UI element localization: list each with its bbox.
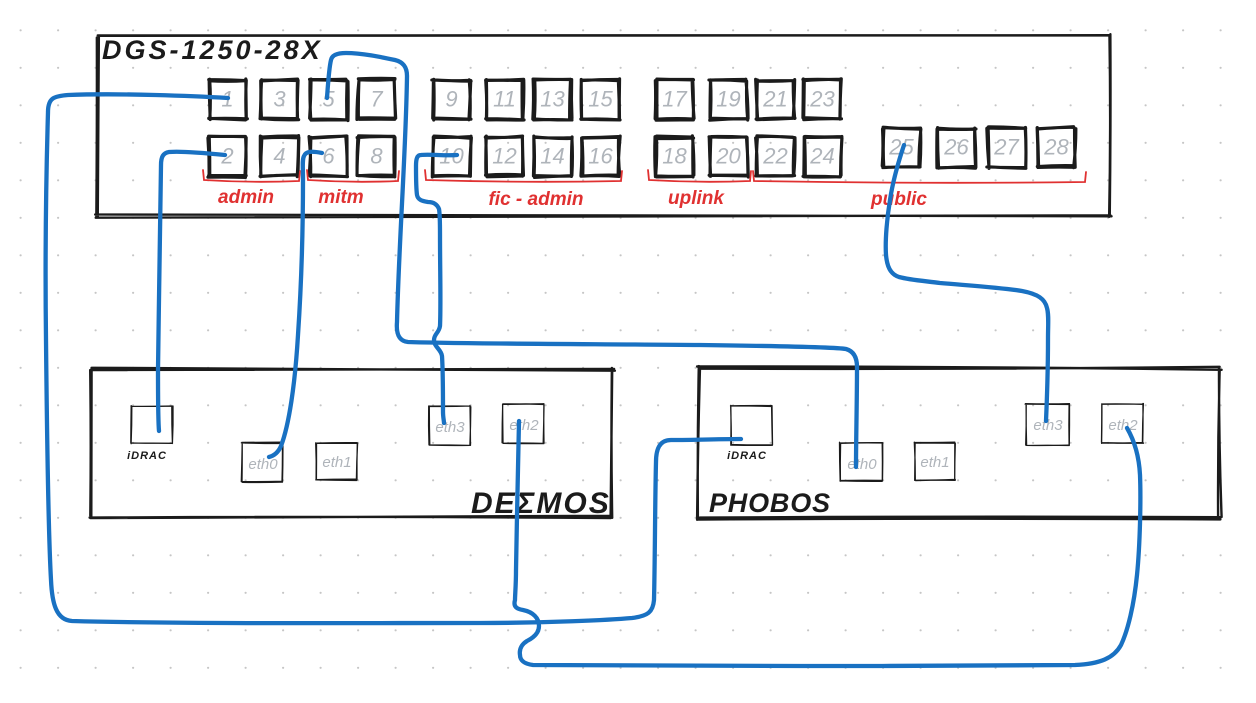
svg-text:eth2: eth2 bbox=[1108, 417, 1138, 434]
svg-text:17: 17 bbox=[662, 87, 687, 112]
svg-text:23: 23 bbox=[809, 87, 835, 112]
svg-text:PHOBOS: PHOBOS bbox=[709, 488, 831, 518]
svg-text:mitm: mitm bbox=[318, 187, 364, 208]
svg-text:fic - admin: fic - admin bbox=[488, 189, 583, 210]
svg-text:18: 18 bbox=[662, 144, 687, 169]
svg-text:22: 22 bbox=[762, 144, 787, 169]
svg-text:27: 27 bbox=[993, 135, 1019, 160]
svg-text:16: 16 bbox=[588, 144, 613, 169]
svg-text:4: 4 bbox=[273, 144, 285, 169]
svg-text:6: 6 bbox=[322, 144, 335, 169]
svg-text:21: 21 bbox=[762, 87, 787, 112]
svg-text:13: 13 bbox=[540, 87, 565, 112]
svg-text:uplink: uplink bbox=[668, 188, 725, 209]
svg-text:eth1: eth1 bbox=[322, 454, 351, 471]
svg-text:eth2: eth2 bbox=[509, 417, 539, 434]
svg-text:eth1: eth1 bbox=[920, 454, 949, 471]
svg-text:eth3: eth3 bbox=[1033, 417, 1063, 434]
svg-text:3: 3 bbox=[273, 87, 286, 112]
svg-text:public: public bbox=[870, 189, 927, 210]
svg-text:eth0: eth0 bbox=[847, 456, 877, 473]
svg-text:19: 19 bbox=[716, 87, 740, 112]
svg-text:26: 26 bbox=[943, 135, 969, 160]
svg-text:DGS-1250-28X: DGS-1250-28X bbox=[102, 35, 323, 65]
svg-text:7: 7 bbox=[370, 87, 383, 112]
svg-text:15: 15 bbox=[588, 87, 613, 112]
svg-text:eth3: eth3 bbox=[435, 419, 465, 436]
svg-text:8: 8 bbox=[370, 144, 383, 169]
svg-text:iDRAC: iDRAC bbox=[127, 450, 167, 462]
svg-text:DEΣMOS: DEΣMOS bbox=[471, 487, 611, 520]
svg-text:iDRAC: iDRAC bbox=[727, 450, 767, 462]
svg-text:28: 28 bbox=[1043, 135, 1069, 160]
svg-text:24: 24 bbox=[809, 144, 834, 169]
svg-text:admin: admin bbox=[218, 187, 274, 208]
svg-text:20: 20 bbox=[715, 144, 741, 169]
svg-text:11: 11 bbox=[493, 87, 516, 112]
svg-text:14: 14 bbox=[540, 144, 564, 169]
svg-text:eth0: eth0 bbox=[248, 456, 278, 473]
svg-text:12: 12 bbox=[492, 144, 516, 169]
svg-text:9: 9 bbox=[445, 87, 457, 112]
